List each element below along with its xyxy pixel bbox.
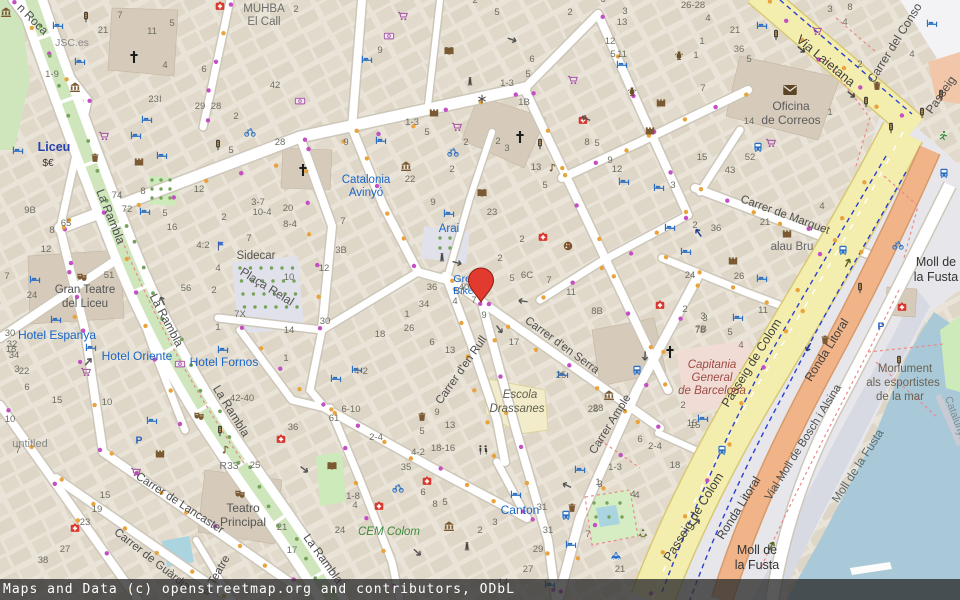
house-number: 2 bbox=[497, 253, 502, 264]
place-label: General bbox=[692, 372, 733, 384]
poi-dot bbox=[178, 422, 182, 426]
poi-dot bbox=[636, 420, 640, 424]
house-number: 7 bbox=[4, 271, 9, 282]
house-number: 26-28 bbox=[681, 0, 705, 11]
house-number: 5 bbox=[746, 54, 751, 65]
poi-dot bbox=[534, 348, 538, 352]
house-number: 30 bbox=[5, 328, 16, 339]
poi-dot bbox=[744, 93, 748, 97]
house-number: 8 bbox=[49, 225, 54, 236]
poi-dot bbox=[678, 317, 682, 321]
money-icon bbox=[384, 33, 393, 39]
poi-dot bbox=[796, 288, 800, 292]
castle-icon bbox=[430, 109, 438, 116]
house-number: 9 bbox=[377, 45, 382, 56]
house-number: 51 bbox=[104, 270, 115, 281]
tree-dot bbox=[448, 236, 451, 239]
place-label: Gran Teatre bbox=[55, 284, 116, 296]
house-number: 13 bbox=[445, 345, 456, 356]
poi-dot bbox=[381, 549, 385, 553]
house-number: 3 bbox=[827, 4, 832, 15]
house-number: 1 bbox=[827, 107, 832, 118]
poi-dot bbox=[444, 108, 448, 112]
place-label: la Fusta bbox=[914, 270, 959, 284]
house-number: 7 bbox=[471, 295, 476, 306]
house-number: 23 bbox=[80, 517, 91, 528]
tree-dot bbox=[252, 292, 255, 295]
house-number: 1B bbox=[518, 97, 530, 108]
house-number: 18-16 bbox=[431, 443, 455, 454]
poi-dot bbox=[53, 482, 57, 486]
tree-dot bbox=[618, 501, 621, 504]
tree-dot bbox=[159, 187, 162, 190]
poi-dot bbox=[649, 345, 653, 349]
house-number: 56 bbox=[181, 283, 192, 294]
poi-dot bbox=[137, 203, 141, 207]
poi-dot bbox=[594, 161, 598, 165]
poi-dot bbox=[624, 148, 628, 152]
place-label: Moll de bbox=[737, 543, 777, 557]
firstaid-icon bbox=[656, 301, 665, 309]
poi-dot bbox=[731, 285, 735, 289]
place-label: Capitania bbox=[688, 359, 737, 371]
house-number: 5 bbox=[509, 273, 514, 284]
firstaid-icon bbox=[423, 477, 432, 485]
house-number: 5 bbox=[610, 49, 615, 60]
house-number: 16 bbox=[167, 222, 178, 233]
house-number: 28 bbox=[588, 404, 599, 415]
poi-dot bbox=[143, 324, 147, 328]
attribution-text: Maps and Data (c) openstreetmap.org and … bbox=[3, 582, 515, 597]
house-number: 6 bbox=[24, 382, 29, 393]
tree-dot bbox=[267, 505, 271, 509]
cem-green bbox=[316, 452, 346, 506]
bus-icon bbox=[633, 366, 640, 375]
firstaid-icon bbox=[898, 303, 907, 311]
poi-dot bbox=[629, 251, 633, 255]
house-number: 18 bbox=[375, 329, 386, 340]
poi-dot bbox=[574, 203, 578, 207]
tree-dot bbox=[607, 515, 610, 518]
poi-dot bbox=[656, 425, 660, 429]
house-number: 15 bbox=[690, 420, 701, 431]
tree-dot bbox=[291, 266, 294, 269]
poi-dot bbox=[354, 481, 358, 485]
house-number: 10-4 bbox=[252, 207, 271, 218]
bus-icon bbox=[562, 511, 569, 520]
castle-icon bbox=[729, 257, 737, 264]
house-number: 61 bbox=[329, 413, 340, 424]
house-number: 6 bbox=[600, 0, 605, 5]
poi-dot bbox=[683, 117, 687, 121]
house-number: 3 bbox=[504, 143, 509, 154]
poi-dot bbox=[355, 129, 359, 133]
poi-dot bbox=[668, 170, 672, 174]
poi-dot bbox=[206, 88, 210, 92]
tree-dot bbox=[241, 292, 244, 295]
poi-dot bbox=[67, 270, 71, 274]
map-canvas[interactable]: P bbox=[0, 0, 960, 600]
house-number: 23 bbox=[487, 207, 498, 218]
hotel-name-label: Catalonia bbox=[342, 174, 391, 186]
poi-dot bbox=[343, 446, 347, 450]
tree-dot bbox=[280, 266, 283, 269]
poi-dot bbox=[727, 442, 731, 446]
tree-dot bbox=[168, 187, 171, 190]
map-viewport[interactable]: P bbox=[0, 0, 960, 600]
house-number: 2 bbox=[495, 136, 500, 147]
house-number: 28 bbox=[275, 137, 286, 148]
poi-dot bbox=[98, 448, 102, 452]
house-number: 2 bbox=[682, 304, 687, 315]
tree-dot bbox=[227, 435, 231, 439]
place-label: als esportistes bbox=[866, 377, 940, 389]
poi-dot bbox=[545, 551, 549, 555]
poi-dot bbox=[472, 388, 476, 392]
castle-icon bbox=[135, 158, 143, 165]
place-label: de Correos bbox=[761, 113, 820, 127]
place-label: Teatro bbox=[226, 501, 260, 515]
tree-dot bbox=[438, 246, 441, 249]
place-label: Monument bbox=[878, 363, 933, 375]
tree-dot bbox=[57, 84, 61, 88]
place-label: R33 bbox=[219, 460, 238, 472]
poi-dot bbox=[306, 201, 310, 205]
tree-dot bbox=[125, 224, 129, 228]
tree-dot bbox=[253, 305, 256, 308]
place-label: del Liceu bbox=[62, 298, 108, 310]
poi-dot bbox=[329, 407, 333, 411]
poi-dot bbox=[818, 252, 822, 256]
castle-icon bbox=[657, 99, 665, 106]
hotel-name-label: Arai bbox=[439, 223, 459, 235]
poi-dot bbox=[684, 210, 688, 214]
tree-dot bbox=[150, 178, 153, 181]
house-number: 4:2 bbox=[196, 240, 209, 251]
house-number: 9 bbox=[343, 137, 348, 148]
house-number: 1 bbox=[699, 36, 704, 47]
house-number: 36 bbox=[427, 282, 438, 293]
house-number: 20 bbox=[283, 203, 294, 214]
poi-dot bbox=[546, 129, 550, 133]
house-number: 7 bbox=[585, 529, 590, 540]
poi-dot bbox=[402, 236, 406, 240]
castle-icon bbox=[783, 230, 791, 237]
poi-dot bbox=[92, 403, 96, 407]
tree-dot bbox=[592, 501, 595, 504]
poi-dot bbox=[274, 163, 278, 167]
house-number: 4 bbox=[352, 500, 357, 511]
poi-dot bbox=[190, 569, 194, 573]
poi-dot bbox=[64, 77, 68, 81]
firstaid-icon bbox=[277, 435, 286, 443]
poi-dot bbox=[229, 2, 233, 6]
poi-dot bbox=[239, 171, 243, 175]
firstaid-icon bbox=[71, 524, 80, 532]
house-number: 2 bbox=[519, 234, 524, 245]
poi-dot bbox=[593, 523, 597, 527]
house-number: 12 bbox=[41, 244, 52, 255]
tree-dot bbox=[142, 266, 146, 270]
house-number: 5 bbox=[494, 7, 499, 18]
house-number: 4 bbox=[215, 263, 220, 274]
poi-dot bbox=[263, 563, 267, 567]
poi-dot bbox=[491, 499, 495, 503]
poi-dot bbox=[6, 408, 10, 412]
poi-dot bbox=[492, 454, 496, 458]
poi-dot bbox=[376, 132, 380, 136]
house-number: 11 bbox=[758, 305, 768, 316]
poi-dot bbox=[321, 402, 325, 406]
house-number: 1 bbox=[404, 309, 409, 320]
house-number: 21 bbox=[615, 564, 626, 575]
poi-dot bbox=[725, 199, 729, 203]
poi-dot bbox=[874, 105, 878, 109]
house-number: 10 bbox=[102, 397, 113, 408]
map-attribution: Maps and Data (c) openstreetmap.org and … bbox=[0, 579, 960, 600]
house-number: 42-40 bbox=[230, 393, 254, 404]
poi-dot bbox=[259, 346, 263, 350]
house-number: 8 bbox=[584, 137, 589, 148]
poi-dot bbox=[172, 195, 176, 199]
house-number: 7 bbox=[546, 275, 551, 286]
tree-dot bbox=[295, 305, 298, 308]
poi-dot bbox=[801, 309, 805, 313]
house-number: 24 bbox=[335, 525, 346, 536]
house-number: 8-4 bbox=[283, 219, 297, 230]
poi-dot bbox=[541, 295, 545, 299]
poi-dot bbox=[317, 295, 321, 299]
house-number: 4-2 bbox=[411, 447, 425, 458]
poi-dot bbox=[778, 222, 782, 226]
house-number: 7 bbox=[246, 233, 251, 244]
house-number: 1-3 bbox=[500, 78, 514, 89]
money-icon bbox=[295, 98, 304, 104]
house-number: 65 bbox=[61, 218, 72, 229]
place-label: MUHBA bbox=[243, 3, 285, 15]
poi-dot bbox=[784, 329, 788, 333]
house-number: 25 bbox=[250, 460, 261, 471]
house-number: 8 bbox=[847, 2, 852, 13]
hotel-name-label: Hotel Fornos bbox=[190, 355, 259, 369]
house-number: 2 bbox=[692, 220, 697, 231]
house-number: 5 bbox=[594, 138, 599, 149]
house-number: 7 bbox=[700, 83, 705, 94]
house-number: 26 bbox=[734, 271, 745, 282]
house-number: 2-4 bbox=[648, 441, 662, 452]
poi-dot bbox=[531, 517, 535, 521]
house-number: 6-10 bbox=[341, 404, 360, 415]
house-number: 5 bbox=[419, 426, 424, 437]
poi-dot bbox=[699, 187, 703, 191]
place-label: CEM Colom bbox=[358, 526, 420, 538]
house-number: 42 bbox=[270, 80, 281, 91]
book-icon bbox=[477, 189, 486, 197]
house-number: 7 bbox=[117, 10, 122, 21]
poi-dot bbox=[214, 60, 218, 64]
poi-label: $€ bbox=[42, 158, 54, 169]
place-label: Moll de bbox=[916, 255, 956, 269]
poi-dot bbox=[696, 283, 700, 287]
house-number: 4-2 bbox=[354, 366, 368, 377]
house-number: 19 bbox=[92, 504, 103, 515]
house-number: 3 bbox=[597, 479, 602, 490]
tree-dot bbox=[96, 169, 100, 173]
place-label: Drassanes bbox=[490, 403, 545, 415]
house-number: 5 bbox=[424, 127, 429, 138]
bus-icon bbox=[754, 143, 761, 152]
house-number: 8B bbox=[591, 306, 603, 317]
firstaid-icon bbox=[216, 2, 225, 10]
house-number: 36 bbox=[734, 44, 745, 55]
hotel-name-label: Hotel Espanya bbox=[18, 328, 96, 342]
poi-dot bbox=[12, 0, 16, 4]
tree-dot bbox=[274, 305, 277, 308]
house-number: 40 bbox=[459, 282, 470, 293]
house-number: 21 bbox=[277, 522, 288, 533]
house-number: 2 bbox=[567, 7, 572, 18]
place-label: Principal bbox=[220, 515, 266, 529]
place-label: Oficina bbox=[772, 99, 810, 113]
poi-dot bbox=[784, 19, 788, 23]
hotel-name-label: Avinyó bbox=[349, 187, 383, 199]
envelope-icon bbox=[783, 85, 797, 95]
house-number: 4 bbox=[842, 17, 847, 28]
house-number: 3B bbox=[335, 245, 347, 256]
tree-dot bbox=[168, 196, 171, 199]
house-number: 10 bbox=[5, 414, 16, 425]
house-number: 14 bbox=[744, 116, 755, 127]
hotel-name-label: Hotel Oriente bbox=[102, 349, 173, 363]
poi-dot bbox=[663, 382, 667, 386]
house-number: 11 bbox=[147, 26, 157, 37]
poi-dot bbox=[221, 31, 225, 35]
house-number: 15 bbox=[52, 395, 63, 406]
poi-dot bbox=[600, 266, 604, 270]
house-number: 5 bbox=[169, 18, 174, 29]
house-number: 4 bbox=[705, 13, 710, 24]
poi-dot bbox=[204, 179, 208, 183]
house-number: 6 bbox=[429, 337, 434, 348]
poi-dot bbox=[900, 113, 904, 117]
house-number: 27 bbox=[60, 544, 71, 555]
house-number: 12 bbox=[194, 184, 205, 195]
poi-dot bbox=[465, 483, 469, 487]
tree-dot bbox=[270, 266, 273, 269]
poi-dot bbox=[761, 365, 765, 369]
poi-dot bbox=[560, 166, 564, 170]
tree-dot bbox=[304, 557, 308, 561]
poi-dot bbox=[519, 445, 523, 449]
poi-dot bbox=[655, 231, 659, 235]
poi-dot bbox=[385, 211, 389, 215]
parking-icon bbox=[136, 436, 143, 447]
house-number: 5 bbox=[162, 208, 167, 219]
house-number: 21 bbox=[760, 217, 771, 228]
book-icon bbox=[327, 462, 336, 470]
bus-icon bbox=[839, 246, 846, 255]
house-number: 34 bbox=[419, 299, 430, 310]
castle-icon bbox=[646, 127, 654, 134]
house-number: 4 bbox=[162, 60, 167, 71]
poi-dot bbox=[485, 420, 489, 424]
house-number: 13 bbox=[445, 420, 456, 431]
tree-dot bbox=[48, 54, 52, 58]
place-label: la Fusta bbox=[735, 558, 780, 572]
poi-dot bbox=[525, 481, 529, 485]
money-icon bbox=[175, 361, 184, 367]
tree-dot bbox=[620, 515, 623, 518]
poi-dot bbox=[840, 216, 844, 220]
poi-dot bbox=[478, 302, 482, 306]
house-number: 2 bbox=[221, 212, 226, 223]
house-number: 74 bbox=[112, 190, 123, 201]
firstaid-icon bbox=[375, 502, 384, 510]
poi-dot bbox=[626, 311, 630, 315]
poi-dot bbox=[278, 367, 282, 371]
house-number: 72 bbox=[122, 204, 133, 215]
firstaid-icon bbox=[539, 233, 548, 241]
tree-dot bbox=[448, 246, 451, 249]
house-number: 18 bbox=[6, 344, 17, 355]
house-number: 21 bbox=[730, 25, 741, 36]
house-number: 36 bbox=[288, 422, 299, 433]
house-number: 6C bbox=[521, 270, 533, 281]
tree-dot bbox=[159, 178, 162, 181]
place-label: alau Bru bbox=[771, 241, 814, 253]
metro-station-label: Liceu bbox=[38, 140, 71, 154]
house-number: 15 bbox=[100, 490, 111, 501]
poi-dot bbox=[697, 270, 701, 274]
house-number: 31 bbox=[537, 502, 548, 513]
house-number: 2 bbox=[233, 111, 238, 122]
poi-dot bbox=[87, 99, 91, 103]
poi-dot bbox=[563, 173, 567, 177]
house-number: 11 bbox=[566, 287, 576, 298]
poi-dot bbox=[439, 466, 443, 470]
house-number: 52 bbox=[745, 152, 756, 163]
house-number: 7X bbox=[234, 309, 246, 320]
house-number: 25 bbox=[556, 370, 567, 381]
tree-dot bbox=[259, 266, 262, 269]
house-number: 12 bbox=[612, 164, 623, 175]
palette-icon bbox=[564, 242, 572, 250]
poi-dot bbox=[412, 264, 416, 268]
house-number: 26 bbox=[404, 323, 415, 334]
house-number: 43 bbox=[725, 165, 736, 176]
poi-dot bbox=[303, 138, 307, 142]
house-number: 21 bbox=[98, 25, 109, 36]
tree-dot bbox=[594, 515, 597, 518]
house-number: 2 bbox=[449, 164, 454, 175]
house-number: 9 bbox=[481, 310, 486, 321]
poi-dot bbox=[664, 255, 668, 259]
tree-dot bbox=[168, 178, 171, 181]
poi-dot bbox=[644, 383, 648, 387]
tree-dot bbox=[66, 114, 70, 118]
house-number: 12 bbox=[319, 263, 330, 274]
tree-dot bbox=[133, 240, 137, 244]
house-number: 36 bbox=[711, 223, 722, 234]
house-number: 4 bbox=[819, 201, 824, 212]
poi-dot bbox=[73, 315, 77, 319]
house-number: 2 bbox=[293, 4, 298, 15]
house-number: 29 bbox=[533, 544, 544, 555]
house-number: 2 bbox=[211, 285, 216, 296]
house-number: 6 bbox=[201, 64, 206, 75]
house-number: 17 bbox=[509, 337, 520, 348]
house-number: 4 bbox=[452, 296, 457, 307]
